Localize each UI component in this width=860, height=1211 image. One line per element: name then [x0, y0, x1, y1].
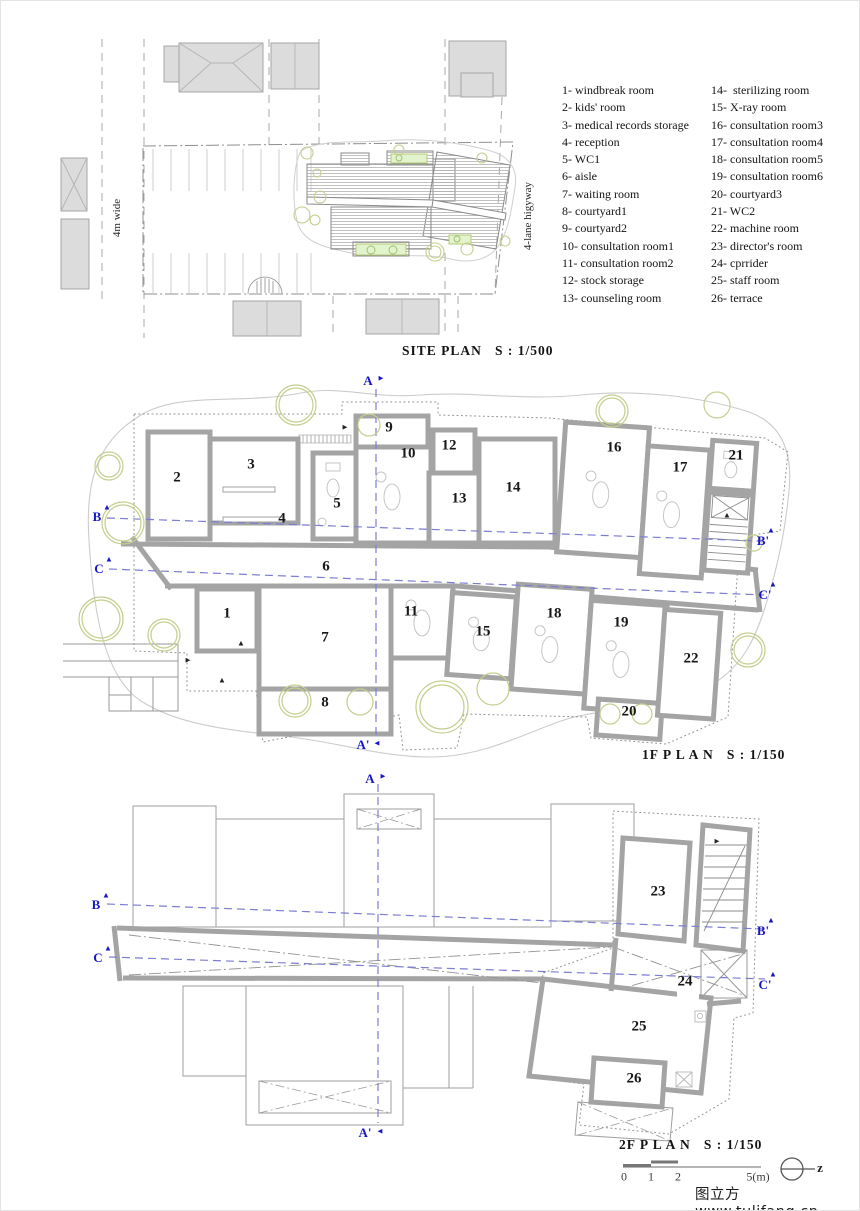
legend-item: 8- courtyard1	[562, 203, 711, 220]
legend-item: 23- director's room	[711, 238, 860, 255]
north-arrow-icon	[781, 1158, 815, 1180]
legend-item: 7- waiting room	[562, 186, 711, 203]
legend-item: 10- consultation room1	[562, 238, 711, 255]
scale-bar	[623, 1162, 761, 1167]
legend-item: 3- medical records storage	[562, 117, 711, 134]
legend-item: 9- courtyard2	[562, 220, 711, 237]
drawing-sheet: SITE PLAN S : 1/500 1F P L A N S : 1/150…	[0, 0, 860, 1211]
legend-item: 12- stock storage	[562, 272, 711, 289]
legend-item: 13- counseling room	[562, 290, 711, 307]
legend-item: 5- WC1	[562, 151, 711, 168]
legend-item: 17- consultation room4	[711, 134, 860, 151]
legend-item: 2- kids' room	[562, 99, 711, 116]
legend-item: 14- sterilizing room	[711, 82, 860, 99]
room-legend: 1- windbreak room2- kids' room3- medical…	[562, 82, 860, 307]
floor2-plan-drawing	[107, 784, 765, 1141]
legend-item: 6- aisle	[562, 168, 711, 185]
legend-item: 1- windbreak room	[562, 82, 711, 99]
legend-item: 11- consultation room2	[562, 255, 711, 272]
legend-item: 24- cprrider	[711, 255, 860, 272]
legend-item: 16- consultation room3	[711, 117, 860, 134]
legend-item: 25- staff room	[711, 272, 860, 289]
legend-item: 20- courtyard3	[711, 186, 860, 203]
legend-column-2: 14- sterilizing room15- X-ray room16- co…	[711, 82, 860, 307]
legend-item: 26- terrace	[711, 290, 860, 307]
legend-item: 19- consultation room6	[711, 168, 860, 185]
floor1-plan-drawing	[63, 385, 790, 757]
legend-item: 15- X-ray room	[711, 99, 860, 116]
site-plan-drawing	[61, 39, 516, 338]
legend-column-1: 1- windbreak room2- kids' room3- medical…	[562, 82, 711, 307]
legend-item: 22- machine room	[711, 220, 860, 237]
legend-item: 18- consultation room5	[711, 151, 860, 168]
legend-item: 21- WC2	[711, 203, 860, 220]
legend-item: 4- reception	[562, 134, 711, 151]
